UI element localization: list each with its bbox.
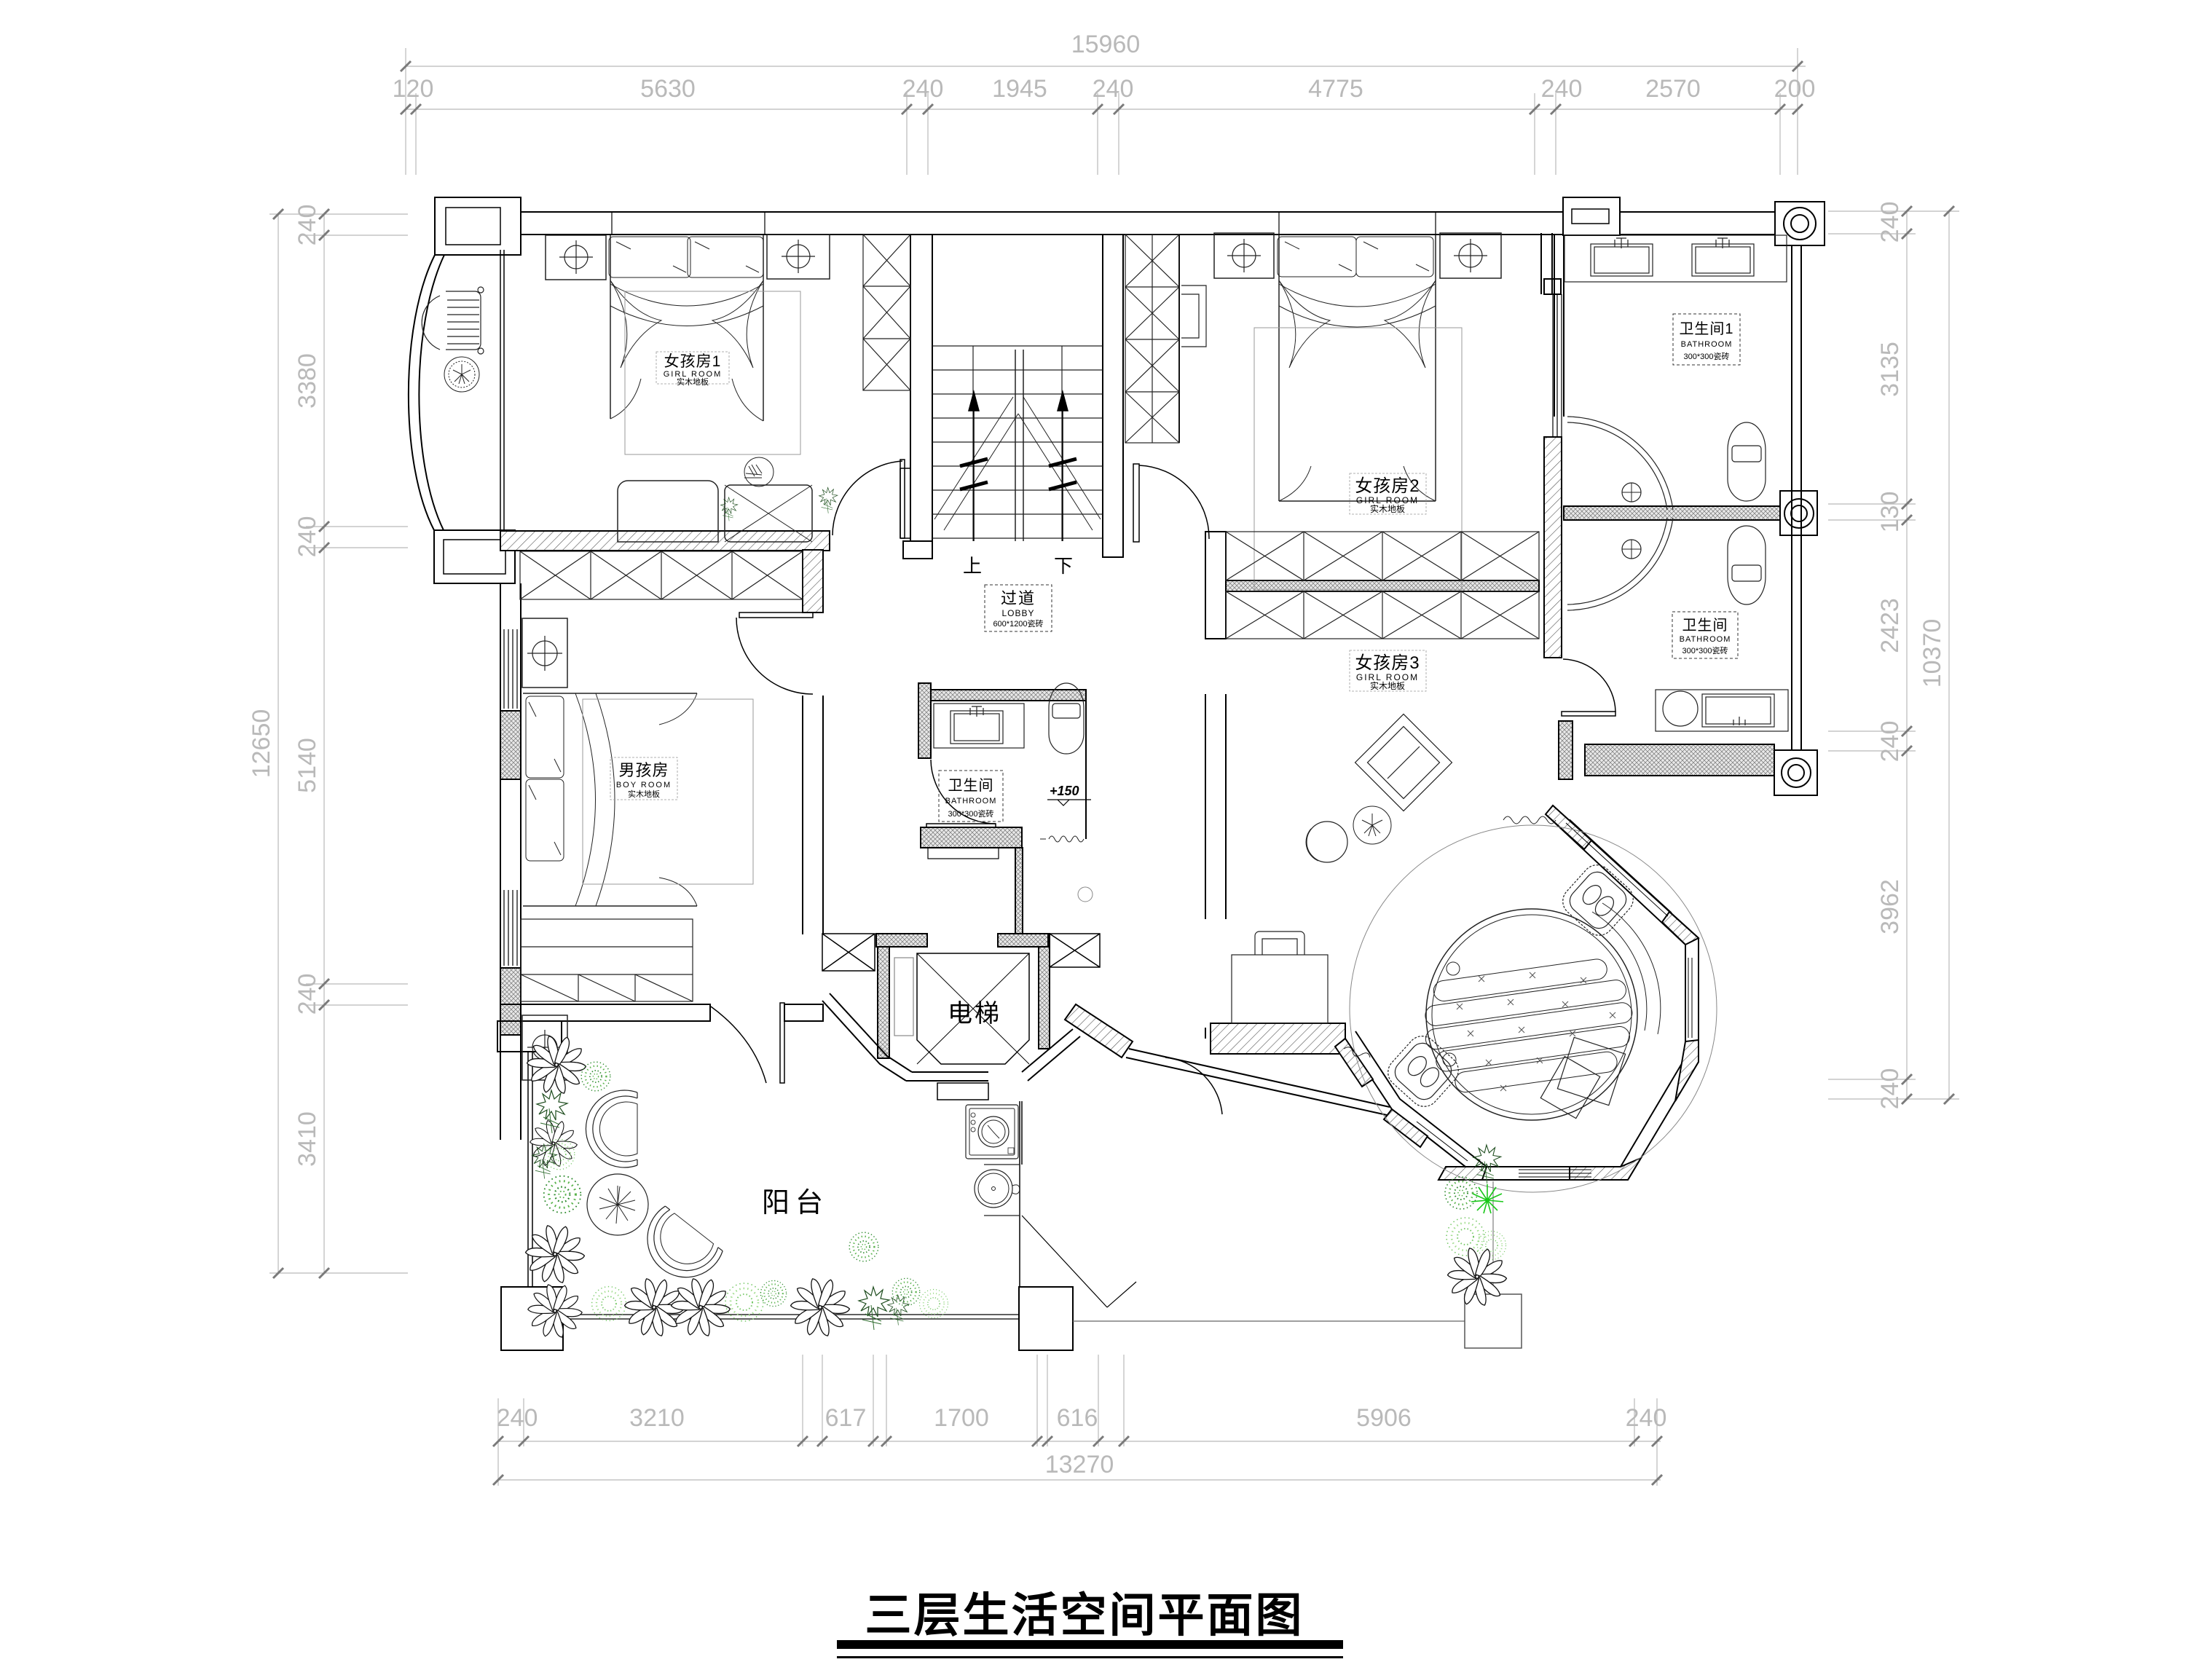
svg-text:616: 616 (1057, 1404, 1098, 1432)
svg-text:3135: 3135 (1876, 342, 1904, 397)
svg-text:卫生间1: 卫生间1 (1679, 320, 1733, 337)
svg-text:3380: 3380 (294, 353, 321, 409)
svg-text:240: 240 (1876, 202, 1904, 243)
svg-text:1700: 1700 (934, 1404, 989, 1432)
svg-text:13270: 13270 (1045, 1451, 1114, 1478)
svg-text:240: 240 (1541, 75, 1583, 103)
svg-text:实木地板: 实木地板 (628, 789, 660, 799)
svg-text:240: 240 (1876, 721, 1904, 763)
svg-text:下: 下 (1054, 555, 1073, 577)
svg-text:4775: 4775 (1308, 75, 1363, 103)
svg-text:600*1200瓷砖: 600*1200瓷砖 (993, 618, 1043, 629)
svg-text:240: 240 (902, 75, 944, 103)
svg-text:上: 上 (963, 555, 982, 577)
svg-text:5906: 5906 (1356, 1404, 1412, 1432)
svg-text:15960: 15960 (1071, 31, 1141, 58)
svg-text:240: 240 (294, 205, 321, 246)
svg-text:卫生间: 卫生间 (1682, 617, 1728, 634)
svg-text:实木地板: 实木地板 (1370, 503, 1405, 514)
svg-text:240: 240 (1093, 75, 1134, 103)
svg-text:5140: 5140 (294, 738, 321, 793)
svg-text:10370: 10370 (1918, 619, 1946, 688)
svg-text:5630: 5630 (640, 75, 696, 103)
svg-text:300*300瓷砖: 300*300瓷砖 (1682, 645, 1728, 655)
svg-text:240: 240 (1876, 1068, 1904, 1110)
svg-text:BATHROOM: BATHROOM (1681, 340, 1733, 349)
svg-text:男孩房: 男孩房 (618, 761, 669, 779)
svg-text:阳台: 阳台 (762, 1188, 829, 1218)
svg-text:女孩房1: 女孩房1 (664, 353, 722, 370)
svg-text:617: 617 (825, 1404, 867, 1432)
svg-text:女孩房2: 女孩房2 (1355, 476, 1420, 496)
svg-text:电梯: 电梯 (948, 1000, 1001, 1028)
svg-text:240: 240 (294, 974, 321, 1015)
svg-text:300*300瓷砖: 300*300瓷砖 (1684, 351, 1730, 361)
svg-text:+150: +150 (1050, 784, 1079, 798)
svg-text:LOBBY: LOBBY (1001, 608, 1034, 618)
svg-text:女孩房3: 女孩房3 (1355, 653, 1420, 673)
svg-text:120: 120 (393, 75, 434, 103)
svg-text:BOY ROOM: BOY ROOM (616, 781, 672, 789)
svg-text:2570: 2570 (1645, 75, 1701, 103)
svg-text:240: 240 (497, 1404, 538, 1432)
svg-text:3410: 3410 (294, 1111, 321, 1167)
svg-text:2423: 2423 (1876, 598, 1904, 653)
svg-text:300*300瓷砖: 300*300瓷砖 (948, 808, 994, 819)
svg-text:BATHROOM: BATHROOM (1680, 635, 1731, 644)
svg-text:240: 240 (294, 516, 321, 558)
svg-text:3962: 3962 (1876, 879, 1904, 934)
svg-text:12650: 12650 (248, 709, 275, 779)
svg-text:200: 200 (1774, 75, 1816, 103)
svg-text:实木地板: 实木地板 (1370, 680, 1405, 691)
svg-text:卫生间: 卫生间 (948, 777, 994, 794)
svg-text:1945: 1945 (992, 75, 1047, 103)
svg-text:240: 240 (1626, 1404, 1667, 1432)
svg-text:BATHROOM: BATHROOM (945, 797, 997, 805)
svg-text:三层生活空间平面图: 三层生活空间平面图 (865, 1589, 1304, 1642)
svg-text:3210: 3210 (629, 1404, 685, 1432)
svg-text:130: 130 (1876, 492, 1904, 533)
svg-text:实木地板: 实木地板 (677, 377, 709, 387)
svg-text:过道: 过道 (1001, 589, 1036, 607)
